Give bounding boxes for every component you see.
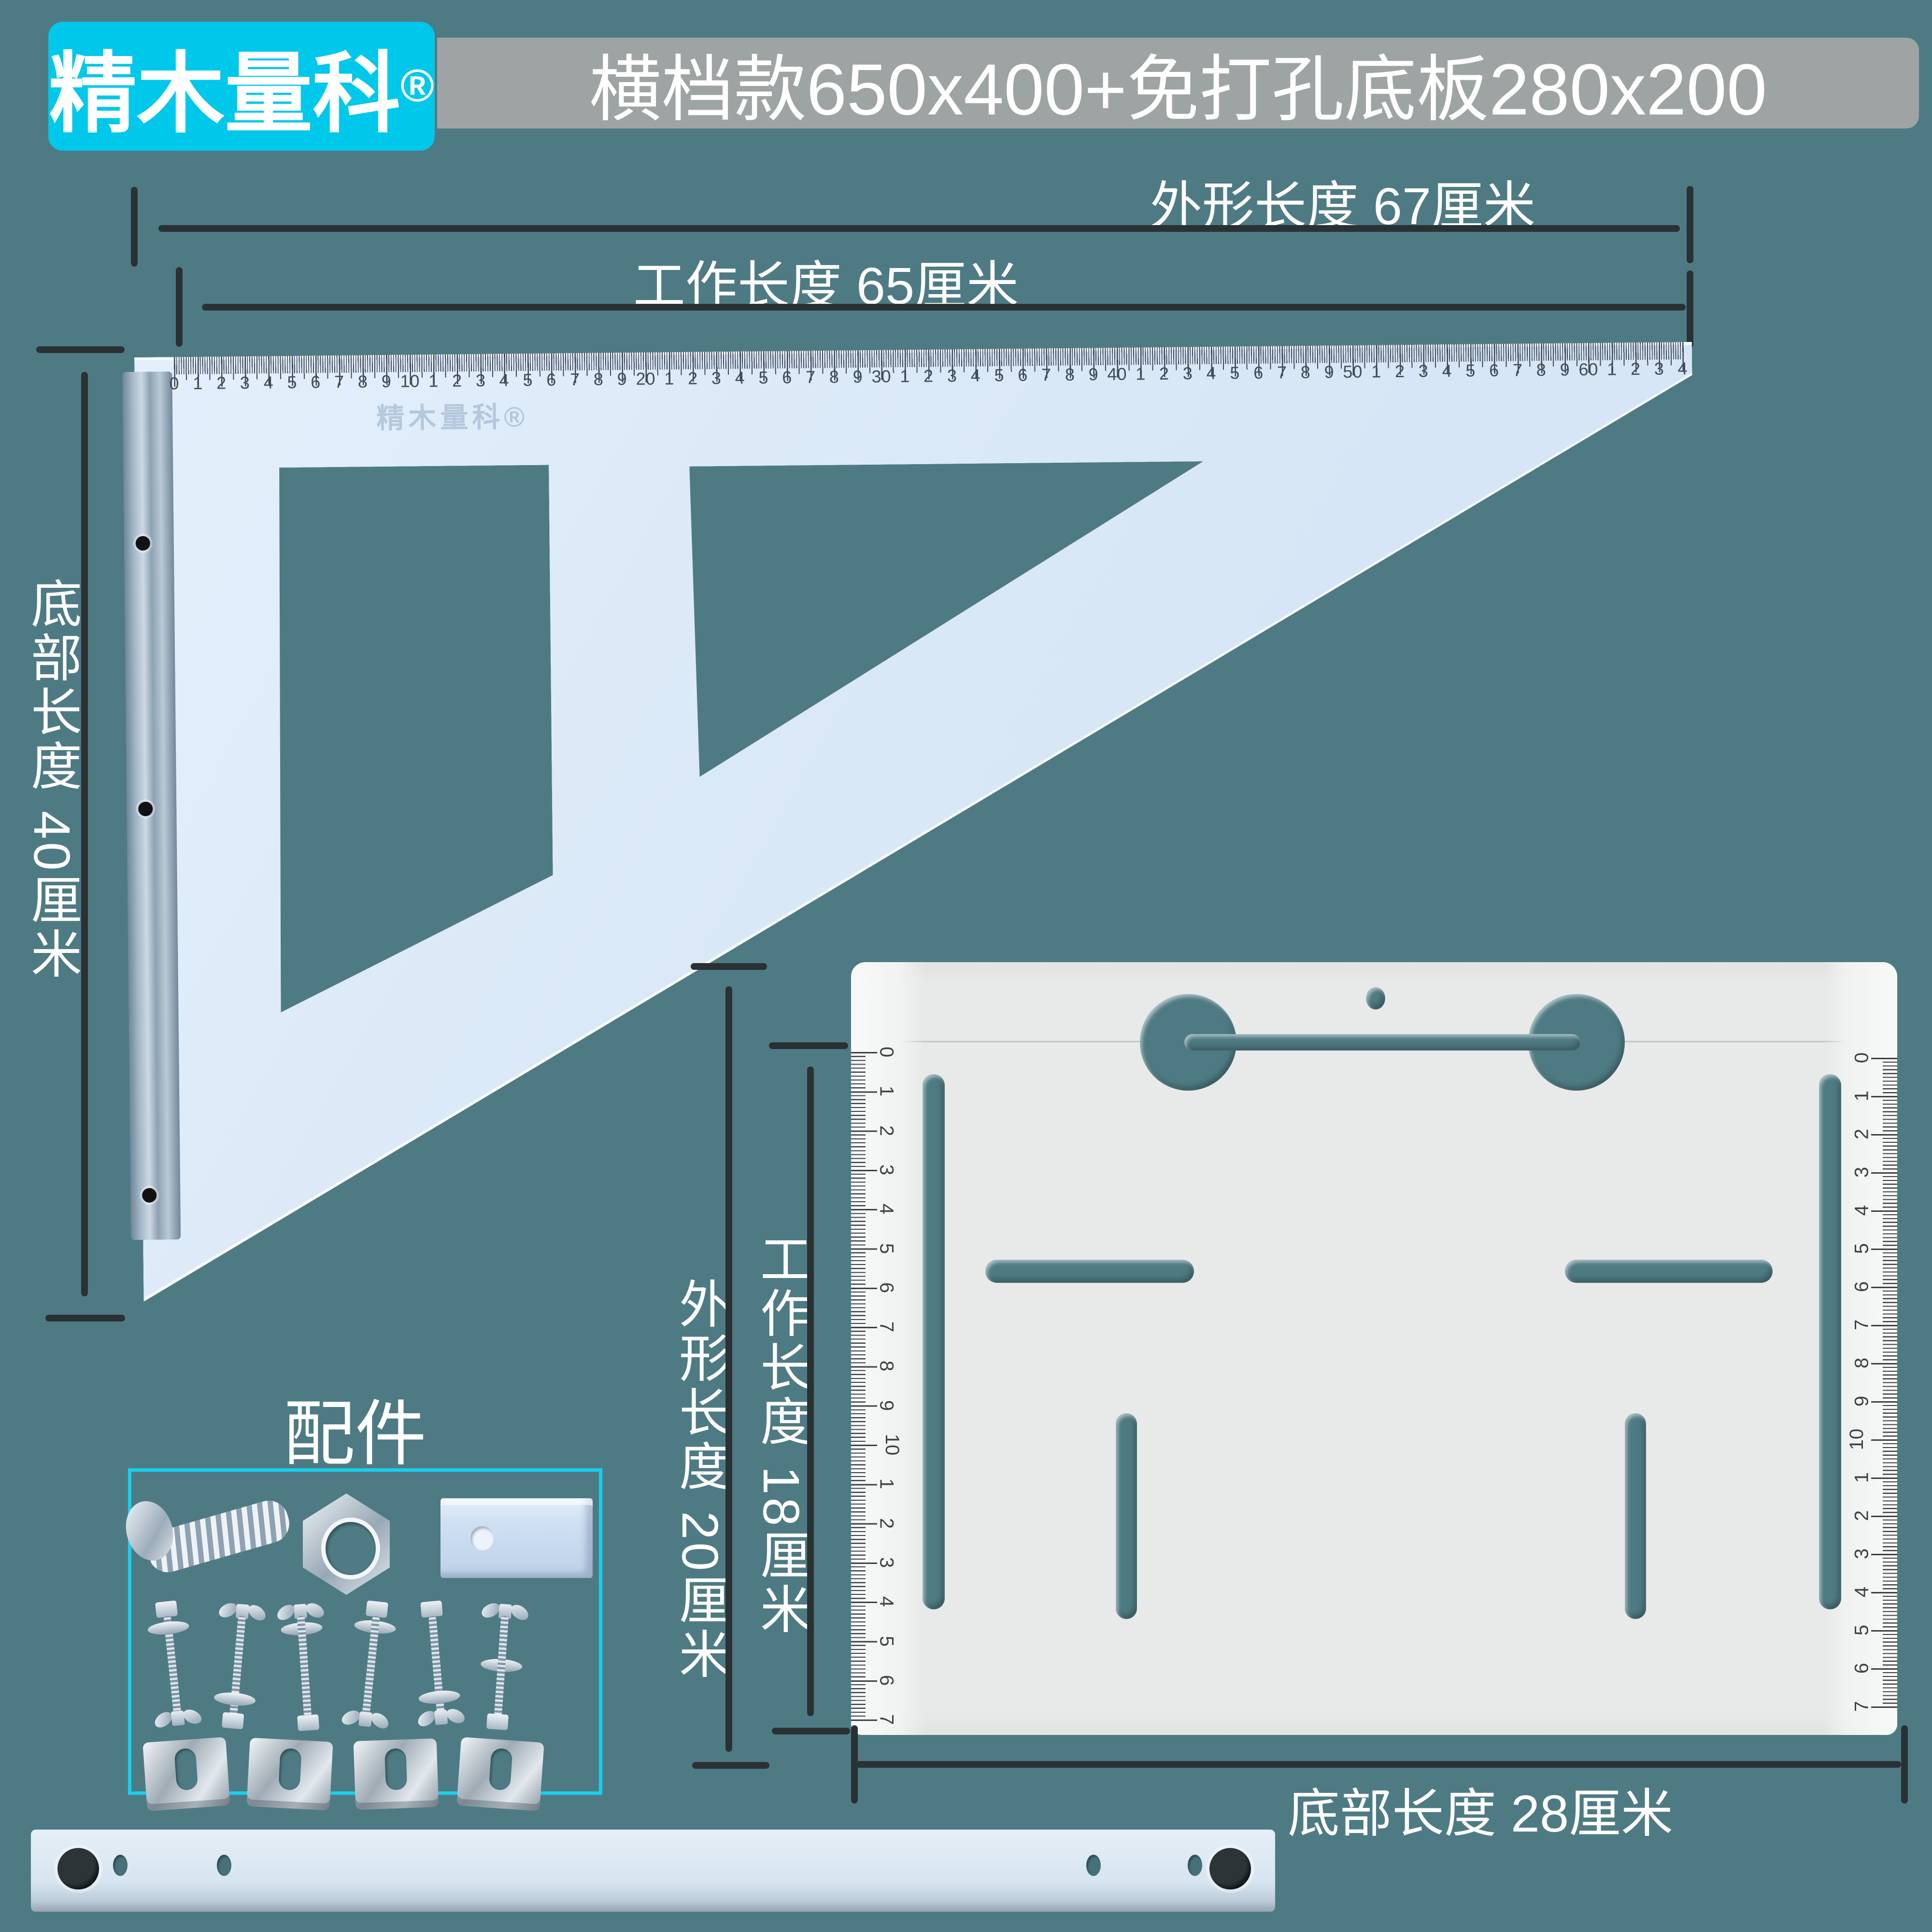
plate-pin-hole bbox=[1366, 987, 1385, 1009]
rail-screw-icon bbox=[136, 536, 150, 551]
plate-lower-slot-right bbox=[1625, 1413, 1646, 1619]
dim-tick-65-right bbox=[1687, 270, 1693, 348]
dim-cap-18-top bbox=[769, 1042, 848, 1049]
dim-line-28 bbox=[856, 1761, 1901, 1768]
plate-left-ruler-numbers: 0123456789101234567 bbox=[881, 1052, 910, 1728]
plate-edge-slot-left bbox=[923, 1074, 945, 1609]
product-image: 精木量科® 横档款650x400+免打孔底板280x200 外形长度 67厘米 … bbox=[0, 0, 1932, 1932]
product-title: 横档款650x400+免打孔底板280x200 bbox=[589, 31, 1767, 136]
plate-edge-slot-right bbox=[1819, 1074, 1841, 1609]
dim-line-40 bbox=[81, 372, 88, 1296]
bar-bolt-hole-icon bbox=[57, 1848, 99, 1889]
wing-bolt-icon bbox=[335, 1598, 407, 1734]
plate-connecting-slot bbox=[1184, 1034, 1580, 1051]
mount-clip-icon bbox=[456, 1737, 544, 1811]
dim-label-bottom-28: 底部长度 28厘米 bbox=[1263, 1772, 1698, 1847]
plate-right-ruler-numbers: 0123456789101234567 bbox=[1838, 1058, 1867, 1715]
bar-small-hole-icon bbox=[113, 1855, 128, 1876]
wing-bolt-icon bbox=[137, 1598, 208, 1734]
dim-line-20 bbox=[725, 986, 732, 1752]
dim-tick-67-left bbox=[131, 187, 138, 267]
plate-horizontal-slot-left bbox=[985, 1260, 1194, 1283]
aluminum-rail bbox=[122, 371, 181, 1240]
registered-mark: ® bbox=[400, 60, 434, 113]
spacer-block-hole-icon bbox=[470, 1526, 494, 1550]
brand-name: 精木量科 bbox=[49, 23, 400, 150]
mount-clip-icon bbox=[246, 1738, 333, 1811]
dim-label-bottom-40: 底部长度 40厘米 bbox=[14, 577, 89, 981]
dim-cap-40-top bbox=[36, 346, 125, 353]
mount-clip-icon bbox=[142, 1737, 230, 1811]
wing-bolt-icon bbox=[203, 1599, 272, 1733]
rail-screw-icon bbox=[138, 802, 153, 816]
brand-logo: 精木量科® bbox=[48, 22, 435, 151]
dim-line-67 bbox=[158, 225, 1680, 232]
mount-clip-icon bbox=[354, 1738, 439, 1810]
plate-left-ruler: 0123456789101234567 bbox=[851, 962, 923, 1735]
dim-line-65 bbox=[202, 304, 1686, 311]
accessories-box bbox=[128, 1468, 602, 1795]
bar-small-hole-icon bbox=[1188, 1855, 1202, 1876]
plate-horizontal-slot-right bbox=[1565, 1260, 1773, 1283]
dim-cap-20-bottom bbox=[692, 1762, 769, 1769]
dim-cap-20-top bbox=[691, 963, 767, 970]
mounting-bar bbox=[31, 1830, 1275, 1912]
title-banner: 横档款650x400+免打孔底板280x200 bbox=[437, 38, 1919, 128]
dim-cap-40-bottom bbox=[45, 1315, 125, 1321]
bar-small-hole-icon bbox=[1086, 1855, 1101, 1876]
spacer-block-icon bbox=[440, 1498, 593, 1578]
accessories-label: 配件 bbox=[234, 1376, 476, 1479]
dim-tick-28-left bbox=[851, 1725, 858, 1804]
base-plate: 0123456789101234567 0123456789101234567 bbox=[851, 962, 1897, 1735]
rail-screw-icon bbox=[142, 1188, 156, 1203]
plate-lower-slot-left bbox=[1116, 1413, 1137, 1619]
dim-tick-67-right bbox=[1687, 186, 1693, 263]
dim-tick-65-left bbox=[176, 267, 183, 347]
wing-bolt-icon bbox=[402, 1599, 471, 1733]
engraved-watermark: 精木量科® bbox=[376, 394, 529, 436]
wing-bolt-icon bbox=[271, 1599, 338, 1733]
wing-bolt-icon bbox=[468, 1599, 535, 1733]
bar-bolt-hole-icon bbox=[1209, 1848, 1251, 1889]
dim-tick-28-right bbox=[1901, 1725, 1908, 1804]
hex-nut-hole-icon bbox=[321, 1518, 380, 1579]
bar-small-hole-icon bbox=[217, 1855, 231, 1876]
dim-line-18 bbox=[807, 1066, 814, 1716]
dim-cap-18-bottom bbox=[772, 1728, 850, 1734]
